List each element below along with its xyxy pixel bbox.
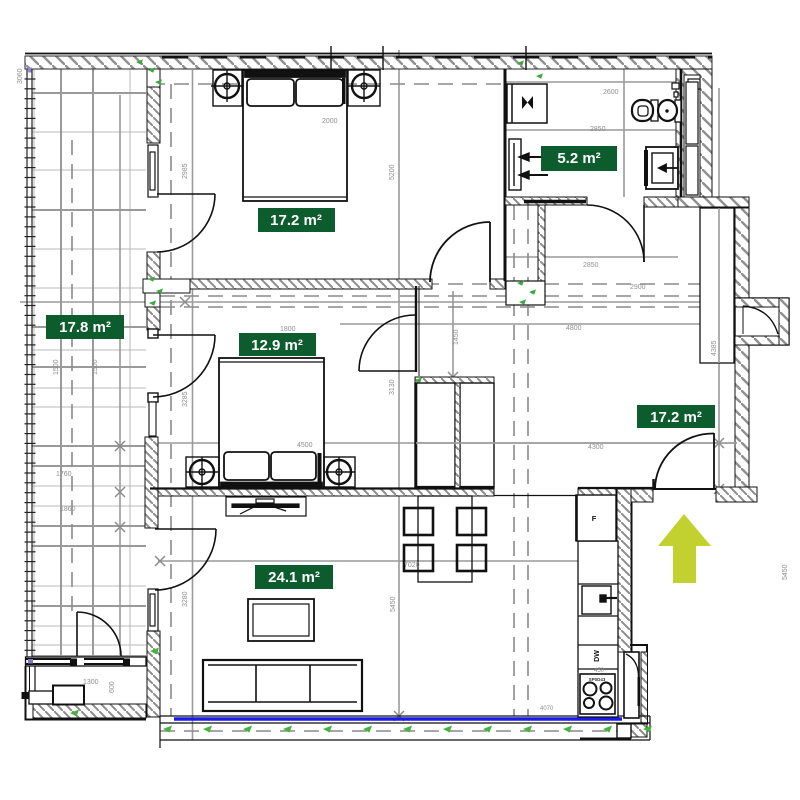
- svg-text:4300: 4300: [588, 444, 604, 451]
- svg-text:1500: 1500: [92, 359, 99, 375]
- svg-text:1450: 1450: [453, 329, 460, 345]
- svg-text:3285: 3285: [182, 391, 189, 407]
- svg-text:2000: 2000: [322, 118, 338, 125]
- svg-text:3130: 3130: [389, 379, 396, 395]
- svg-text:2850: 2850: [590, 126, 606, 133]
- svg-text:5200: 5200: [389, 164, 396, 180]
- svg-text:1300: 1300: [83, 679, 99, 686]
- svg-text:DW: DW: [594, 650, 601, 662]
- svg-text:3060: 3060: [17, 68, 24, 84]
- svg-text:2850: 2850: [583, 262, 599, 269]
- svg-text:600: 600: [109, 681, 116, 693]
- svg-text:4070: 4070: [540, 706, 554, 712]
- svg-text:1800: 1800: [280, 326, 296, 333]
- svg-text:12.9 m²: 12.9 m²: [251, 337, 303, 354]
- svg-text:5450: 5450: [390, 596, 397, 612]
- svg-text:4385: 4385: [711, 340, 718, 356]
- svg-text:17.8 m²: 17.8 m²: [59, 319, 111, 336]
- svg-text:1860: 1860: [60, 506, 76, 513]
- svg-text:SP0D43: SP0D43: [589, 677, 606, 682]
- svg-text:F: F: [592, 514, 597, 523]
- svg-text:24.1 m²: 24.1 m²: [268, 569, 320, 586]
- svg-text:5450: 5450: [782, 564, 789, 580]
- svg-text:2985: 2985: [182, 163, 189, 179]
- svg-text:7020: 7020: [404, 562, 420, 569]
- svg-text:17.2 m²: 17.2 m²: [270, 212, 322, 229]
- svg-text:3280: 3280: [182, 591, 189, 607]
- svg-text:1760: 1760: [56, 471, 72, 478]
- svg-text:17.2 m²: 17.2 m²: [650, 409, 702, 426]
- svg-text:450: 450: [594, 668, 605, 674]
- svg-text:2900: 2900: [630, 284, 646, 291]
- svg-text:5.2 m²: 5.2 m²: [557, 150, 600, 167]
- svg-text:4500: 4500: [297, 442, 313, 449]
- svg-text:1500: 1500: [53, 359, 60, 375]
- svg-text:4800: 4800: [566, 325, 582, 332]
- svg-text:2600: 2600: [603, 89, 619, 96]
